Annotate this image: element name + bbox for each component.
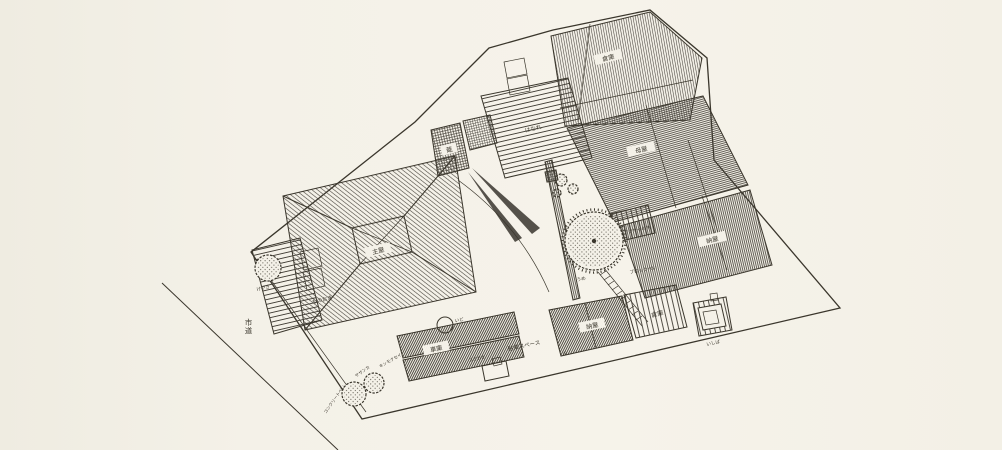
ishiba-label: いしば — [706, 338, 721, 348]
structure-ishiba — [693, 293, 732, 336]
label-ume-tree: うめ — [576, 275, 587, 283]
ume-label: うめ — [576, 275, 587, 283]
hanare-annex-box-1 — [504, 58, 527, 78]
boundary-bushes — [342, 373, 384, 406]
label-ishiba: いしば — [706, 338, 721, 348]
road-label: 市道 — [244, 317, 253, 336]
label-road: 市道 — [244, 317, 253, 336]
bush-1-stipple — [344, 384, 364, 404]
paper-background: 倉庫 母屋 納屋 はなれ 蔵 主屋 ものおき けやき 市道 駐車スペース 車庫 … — [0, 0, 1002, 450]
site-plan-drawing: 倉庫 母屋 納屋 はなれ 蔵 主屋 ものおき けやき 市道 駐車スペース 車庫 … — [0, 0, 1002, 450]
kinmokusei-label: キンモクセイ — [378, 352, 403, 370]
bush-2-stipple — [366, 375, 382, 391]
shrub-2 — [568, 184, 578, 194]
tree-trunk-dot — [592, 239, 596, 243]
small-grid-box — [545, 170, 558, 182]
label-kinmokusei: キンモクセイ — [378, 352, 403, 370]
keyaki-tree-stipple — [257, 257, 279, 279]
ishiba-mid — [698, 304, 726, 330]
shrub-3 — [553, 189, 561, 197]
